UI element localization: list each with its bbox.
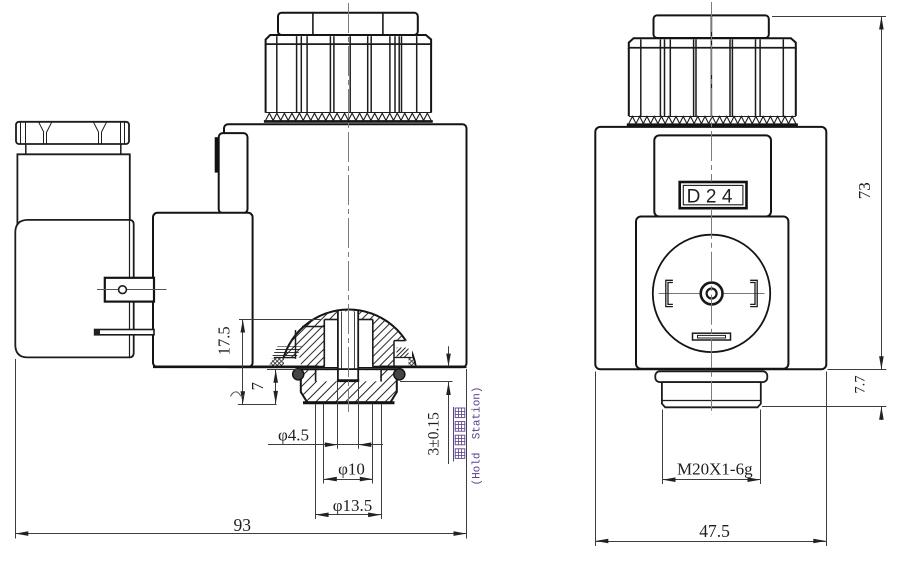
- svg-text:D24: D24: [687, 187, 738, 208]
- svg-text:7.7: 7.7: [852, 376, 868, 394]
- svg-text:(Hold Station): (Hold Station): [472, 386, 484, 485]
- svg-text:M20X1-6g: M20X1-6g: [677, 459, 753, 478]
- svg-text:93: 93: [234, 515, 252, 535]
- svg-text:7: 7: [248, 382, 267, 390]
- svg-text:φ4.5: φ4.5: [278, 426, 309, 445]
- svg-text:47.5: 47.5: [699, 521, 730, 541]
- svg-text:73: 73: [855, 182, 874, 199]
- svg-text:17.5: 17.5: [215, 326, 234, 355]
- svg-text:φ13.5: φ13.5: [333, 496, 373, 515]
- svg-text:φ10: φ10: [338, 460, 365, 479]
- svg-text:3±0.15: 3±0.15: [426, 412, 443, 456]
